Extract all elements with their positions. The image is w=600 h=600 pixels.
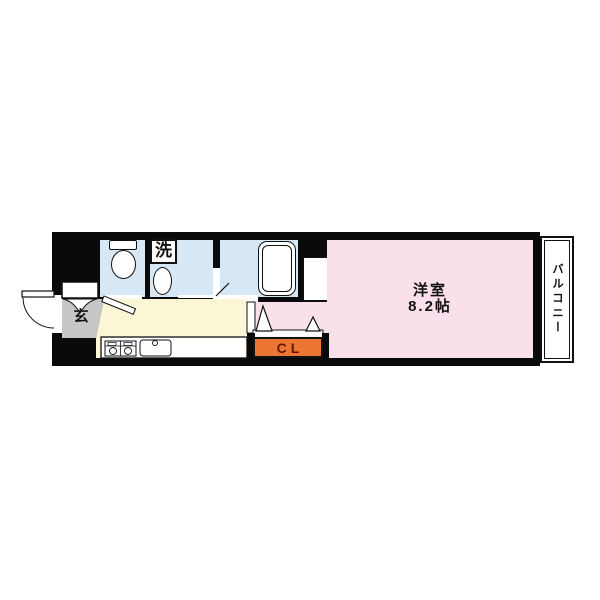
- room-name: 洋室: [413, 283, 447, 300]
- western-room-label: 洋室 8.2帖: [327, 278, 533, 320]
- toilet-door-leaf-icon: [102, 296, 136, 314]
- closet-label: CL: [277, 340, 304, 356]
- bathroom-door-icon: [216, 283, 229, 296]
- folding-door-icon-2: [306, 317, 320, 331]
- shoe-cabinet-icon: [62, 282, 98, 298]
- sink-icon: [140, 340, 171, 356]
- balcony-inner-border: バルコニー: [544, 240, 570, 359]
- entrance-door-swing-icon: [23, 297, 54, 328]
- entrance-door-leaf-icon: [22, 291, 54, 297]
- floor-plan: 洗: [0, 0, 600, 600]
- balcony: バルコニー: [540, 236, 574, 363]
- closet-box: CL: [253, 337, 323, 358]
- entrance-label: 玄: [64, 309, 98, 326]
- room-size: 8.2帖: [408, 299, 452, 316]
- room-door-post: [247, 302, 255, 333]
- balcony-label: バルコニー: [549, 263, 565, 336]
- wall-stub-right: [322, 333, 329, 365]
- stove-icon: [105, 341, 136, 356]
- folding-door-icon: [256, 306, 272, 331]
